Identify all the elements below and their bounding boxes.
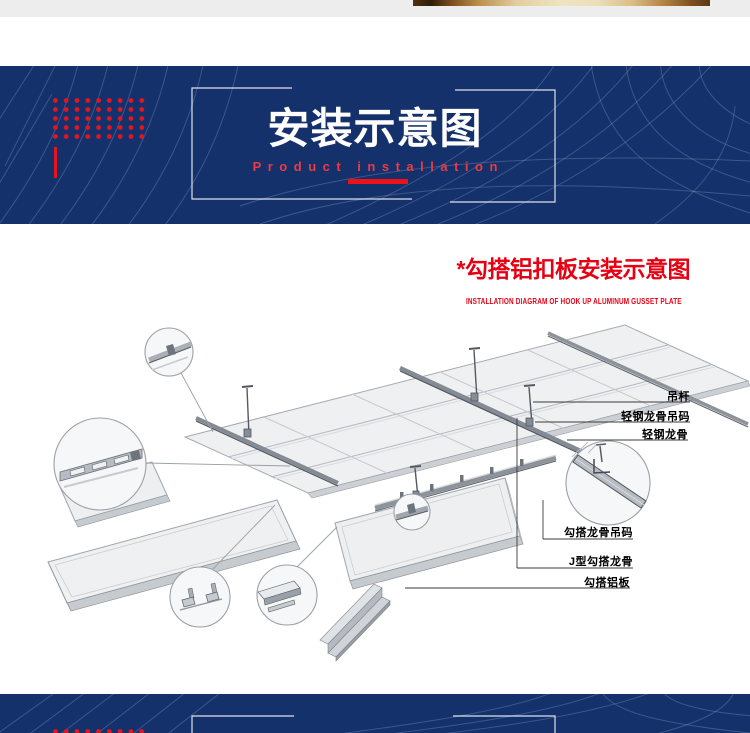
next-section-banner	[0, 694, 750, 733]
banner-subtitle: Product installation	[0, 159, 750, 174]
banner-red-underline	[348, 179, 408, 184]
callout-keel-joint	[145, 328, 213, 432]
label-steel-keel: 轻钢龙骨	[642, 426, 688, 442]
footer-title-brackets	[192, 716, 555, 733]
banner-title: 安装示意图	[0, 106, 750, 152]
label-hook-keel-clip: 勾搭龙骨吊码	[564, 524, 633, 540]
installation-diagram	[0, 320, 750, 670]
top-photo-strip	[0, 0, 750, 17]
label-aluminum-panel: 勾搭铝板	[584, 574, 630, 590]
photo-fragment	[413, 0, 710, 6]
label-j-hook-keel: J型勾搭龙骨	[569, 553, 633, 569]
section-title: *勾搭铝扣板安装示意图	[412, 255, 690, 283]
footer-red-dot-grid	[50, 727, 147, 733]
j-keel-profile-piece	[320, 584, 390, 661]
label-hanger-rod: 吊杆	[667, 388, 690, 404]
callout-hanging-clip	[566, 441, 650, 525]
label-steel-keel-clip: 轻钢龙骨吊码	[621, 408, 690, 424]
callout-rail-clip-small	[394, 494, 430, 530]
section-heading: *勾搭铝扣板安装示意图 INSTALLATION DIAGRAM OF HOOK…	[412, 255, 690, 306]
section-subtitle: INSTALLATION DIAGRAM OF HOOK UP ALUMINUM…	[466, 297, 682, 306]
product-page: 安装示意图 Product installation *勾搭铝扣板安装示意图 I…	[0, 0, 750, 733]
section-banner: 安装示意图 Product installation	[0, 66, 750, 224]
